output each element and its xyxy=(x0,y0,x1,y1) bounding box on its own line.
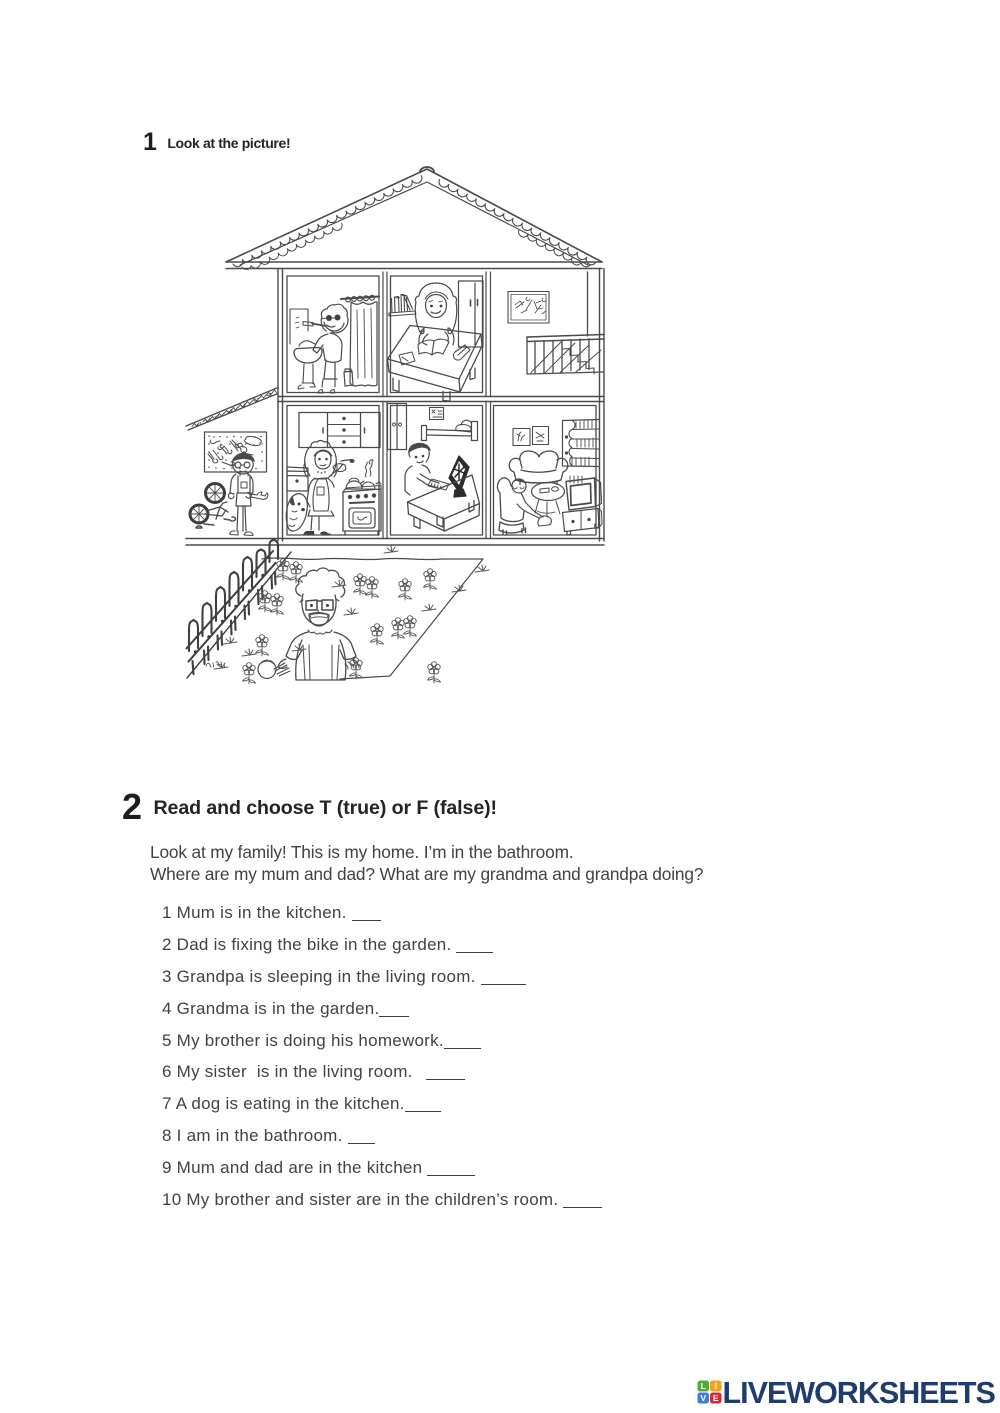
svg-text:V: V xyxy=(700,1393,706,1403)
svg-text:L: L xyxy=(701,1381,706,1391)
svg-text:E: E xyxy=(713,1393,719,1403)
svg-text:I: I xyxy=(715,1381,717,1391)
